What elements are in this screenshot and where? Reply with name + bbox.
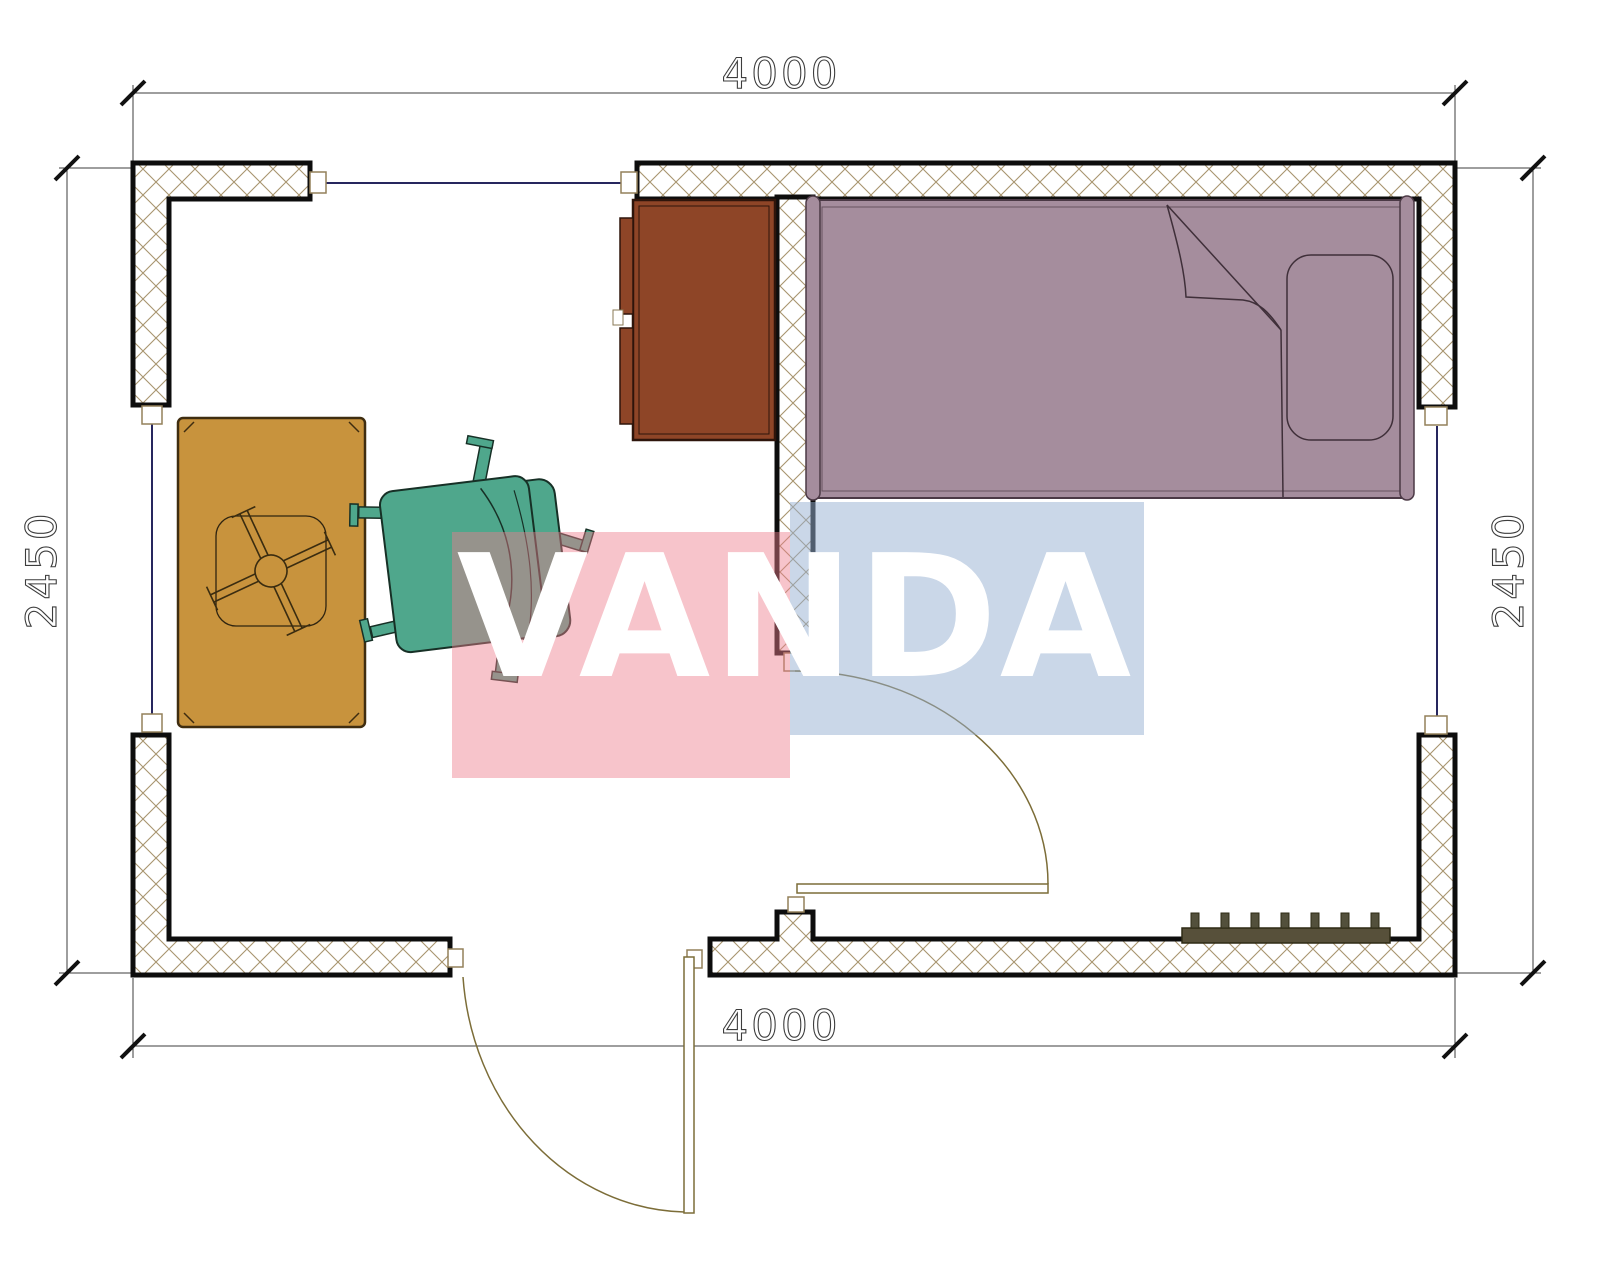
radiator-body [1182,928,1390,943]
wardrobe-handle [613,310,623,325]
jamb-box [621,172,637,193]
watermark-text: VANDA [440,500,1150,735]
pillow-symbol [1287,255,1393,440]
floor-plan-canvas: 4000 4000 2450 2450 [0,0,1600,1280]
door-leaf [684,957,694,1213]
jamb-box [788,897,804,912]
door-swing-arc [463,977,684,1212]
wall-bottom-left [133,735,450,975]
dimension-top-label: 4000 [722,49,841,98]
dimension-bottom-label: 4000 [722,1001,841,1050]
bed-post-left [806,196,820,500]
dimension-left-label: 2450 [17,511,66,630]
desk-symbol [178,418,365,727]
jamb-box [142,406,162,424]
jamb-box [142,714,162,732]
radiator-symbol [1182,913,1390,943]
jamb-box [1425,716,1447,734]
wardrobe-door-front [620,218,633,314]
wall-top-left [133,163,310,405]
jamb-box [1425,407,1447,425]
jamb-box [448,949,463,967]
wardrobe-symbol [613,200,775,440]
wardrobe-body [633,200,775,440]
jamb-box [310,172,326,193]
bed-symbol [806,196,1414,500]
bed-post-right [1400,196,1414,500]
radiator-fins [1191,913,1379,928]
entrance-door [463,957,694,1213]
dimension-right-label: 2450 [1484,511,1533,630]
wardrobe-door-front [620,328,633,424]
door-leaf [797,884,1048,893]
dimension-left [55,156,133,985]
